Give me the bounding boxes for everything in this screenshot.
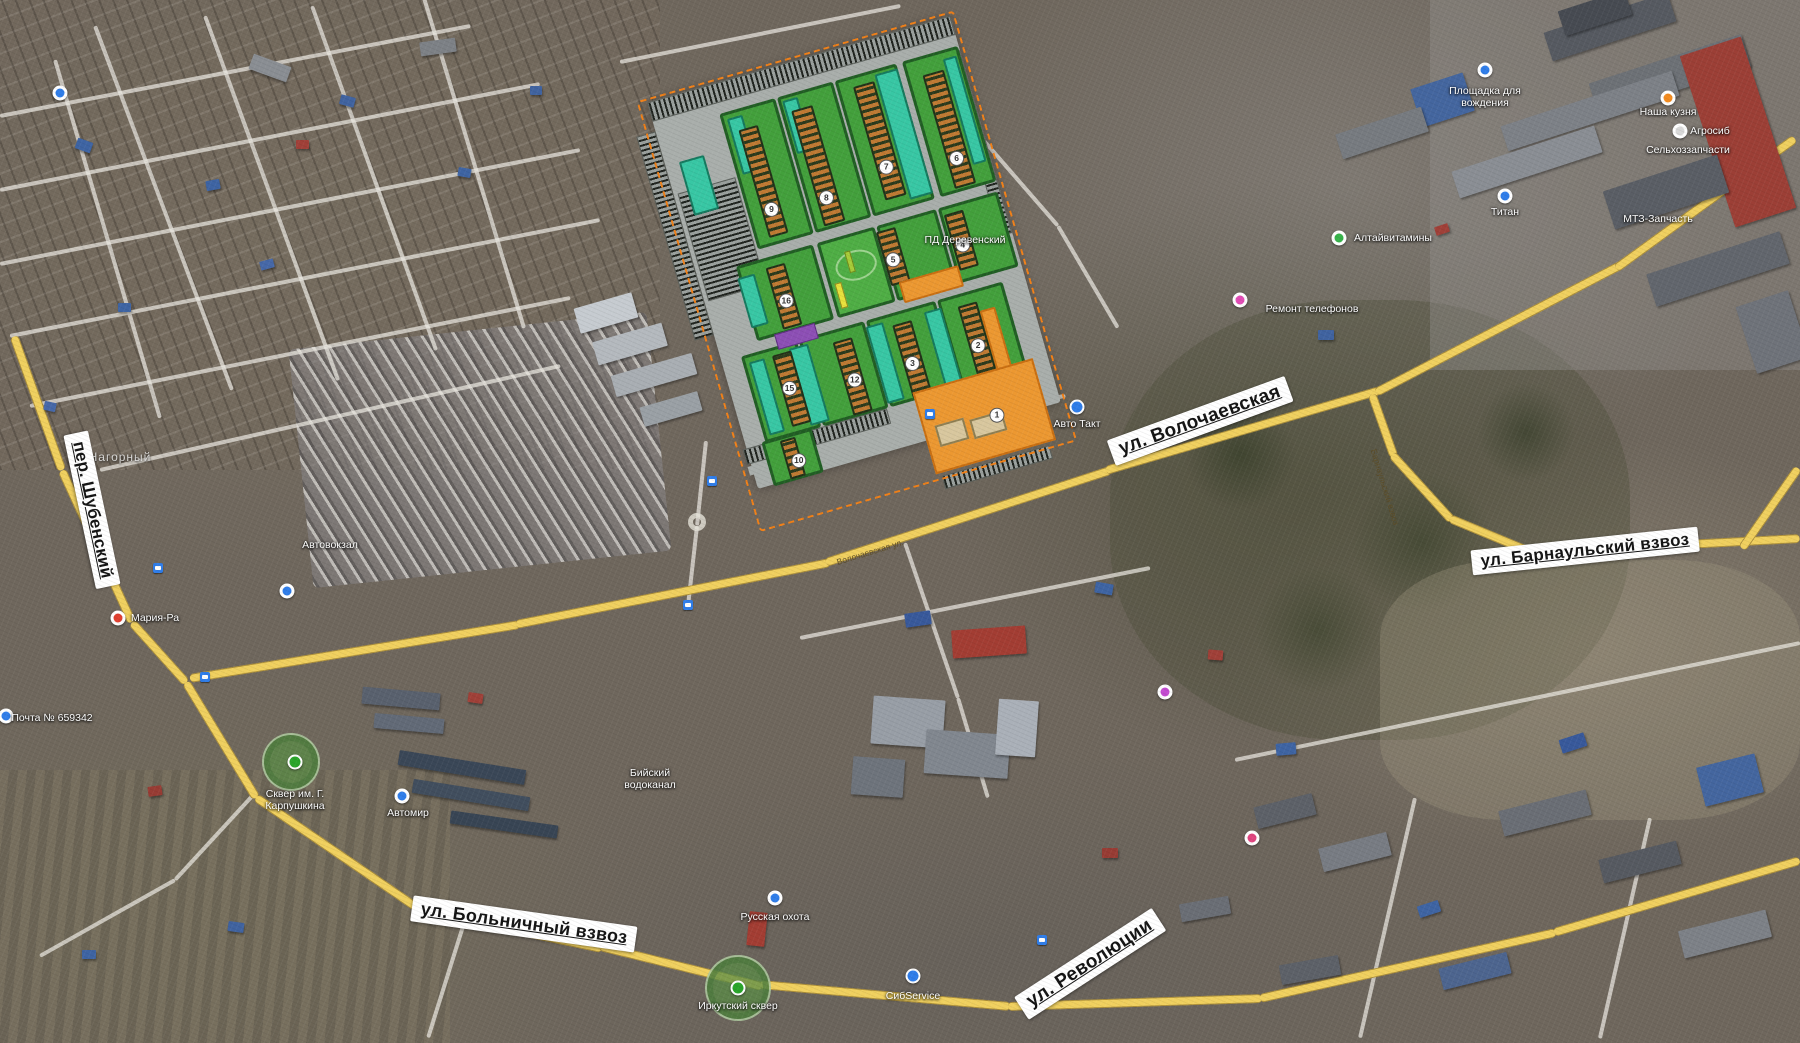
poi-label: Сельхоззапчасти <box>1646 144 1730 156</box>
poi-label: МТЗ-Запчасть <box>1623 213 1693 225</box>
poi-label: Автовокзал <box>302 539 358 551</box>
unit-number-circle[interactable]: 8 <box>819 190 834 205</box>
poi-label: Бийский водоканал <box>616 767 684 791</box>
poi-label: Площадка для вождения <box>1441 85 1529 109</box>
unit-number-circle[interactable]: 5 <box>886 252 901 267</box>
car-poi-icon[interactable] <box>1070 400 1085 415</box>
building <box>467 692 483 704</box>
blue-poi-icon[interactable] <box>1478 63 1493 78</box>
poi-label: Сквер им. Г. Карпушкина <box>249 788 341 812</box>
building <box>1276 742 1297 756</box>
roundabout <box>688 513 706 531</box>
poi-label: Алтайвитамины <box>1354 232 1432 244</box>
poi-label: Автомир <box>387 807 429 819</box>
poi-label: Русская охота <box>741 911 810 923</box>
poi-label: Авто Такт <box>1053 418 1100 430</box>
poi-icon[interactable] <box>1245 831 1260 846</box>
building <box>147 785 162 797</box>
poi-icon[interactable] <box>1158 685 1173 700</box>
building <box>851 756 906 798</box>
blue-poi-icon[interactable] <box>768 891 783 906</box>
blue-poi-icon[interactable] <box>1498 189 1513 204</box>
park-poi-icon[interactable] <box>288 755 303 770</box>
poi-icon[interactable] <box>1233 293 1248 308</box>
poi-label: ПД Деревенский <box>925 234 1006 246</box>
unit-number-circle[interactable]: 10 <box>791 453 806 468</box>
red-poi-icon[interactable] <box>111 611 126 626</box>
unit-number-circle[interactable]: 12 <box>847 373 862 388</box>
building <box>227 921 244 933</box>
blue-poi-icon[interactable] <box>395 789 410 804</box>
unit-number-circle[interactable]: 16 <box>779 293 794 308</box>
white-poi-icon[interactable] <box>1673 124 1688 139</box>
unit-number-circle[interactable]: 9 <box>764 202 779 217</box>
building <box>1318 330 1334 340</box>
poi-label: Титан <box>1491 206 1519 218</box>
building <box>1208 649 1224 660</box>
bus-stop-icon[interactable] <box>1037 935 1047 945</box>
poi-label: Наша кузня <box>1640 106 1697 118</box>
building <box>995 699 1039 758</box>
bus-stop-icon[interactable] <box>925 409 935 419</box>
poi-icon[interactable] <box>53 86 68 101</box>
map-canvas[interactable]: 98765416151232101 ул. Волочаевская ул. Б… <box>0 0 1800 1043</box>
building <box>951 625 1027 658</box>
poi-label: Почта № 659342 <box>11 712 92 724</box>
unit-number-circle[interactable]: 6 <box>949 151 964 166</box>
poi-label: СибService <box>886 990 940 1002</box>
building <box>1102 848 1118 858</box>
unit-number-circle[interactable]: 3 <box>905 356 920 371</box>
bus-stop-icon[interactable] <box>153 563 163 573</box>
unit-number-circle[interactable]: 2 <box>971 338 986 353</box>
bus-stop-icon[interactable] <box>683 600 693 610</box>
poi-label: Мария-Ра <box>131 612 179 624</box>
park-poi-icon[interactable] <box>731 981 746 996</box>
green-poi-icon[interactable] <box>1332 231 1347 246</box>
building <box>530 86 542 95</box>
unit-number-circle[interactable]: 1 <box>989 408 1004 423</box>
unit-number-circle[interactable]: 7 <box>879 160 894 175</box>
poi-label: Агросиб <box>1690 125 1730 137</box>
district-label-nagorny: Нагорный <box>89 450 152 464</box>
poi-label: Иркутский сквер <box>698 1000 778 1012</box>
building <box>118 303 131 312</box>
poi-icon[interactable] <box>280 584 295 599</box>
building <box>82 950 96 959</box>
bus-stop-icon[interactable] <box>200 672 210 682</box>
poi-label: Ремонт телефонов <box>1266 303 1359 315</box>
building <box>296 140 309 149</box>
car-poi-icon[interactable] <box>906 969 921 984</box>
unit-number-circle[interactable]: 15 <box>782 381 797 396</box>
bus-stop-icon[interactable] <box>707 476 717 486</box>
orange-poi-icon[interactable] <box>1661 91 1676 106</box>
